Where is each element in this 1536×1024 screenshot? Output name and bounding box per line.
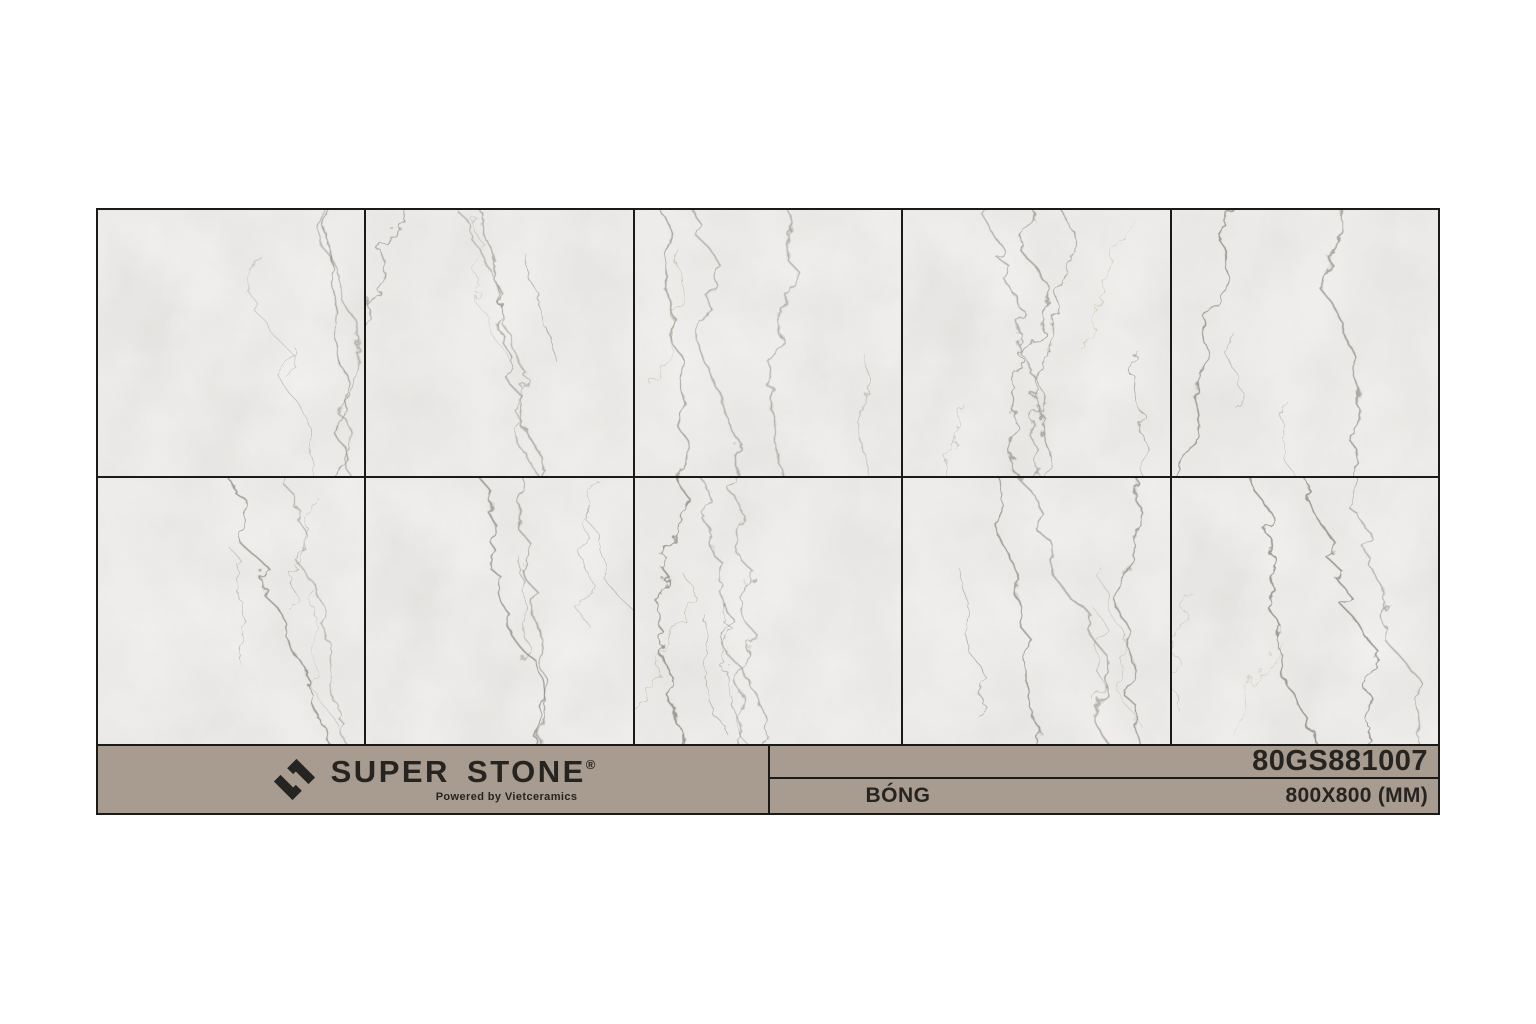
- product-code: 80GS881007: [770, 746, 1438, 779]
- tile-swatch: [635, 210, 901, 476]
- tile-swatch: [903, 210, 1169, 476]
- tile-swatch: [903, 478, 1169, 744]
- product-info-area: 80GS881007 BÓNG 800X800 (MM): [770, 746, 1438, 813]
- tile-grid: [96, 208, 1440, 746]
- tile-swatch: [635, 478, 901, 744]
- brand-name: SUPER STONE: [331, 754, 586, 789]
- brand-name-line: SUPER STONE®: [331, 756, 596, 789]
- brand-area: SUPER STONE® Powered by Vietceramics: [98, 746, 770, 813]
- tile-swatch: [98, 210, 364, 476]
- brand-text-block: SUPER STONE® Powered by Vietceramics: [331, 756, 596, 803]
- brand-logo: SUPER STONE® Powered by Vietceramics: [271, 756, 596, 803]
- product-sheet: SUPER STONE® Powered by Vietceramics 80G…: [0, 0, 1536, 1024]
- tile-swatch: [1172, 478, 1438, 744]
- product-size: 800X800 (MM): [1286, 784, 1439, 808]
- tile-swatch: [366, 210, 632, 476]
- product-finish: BÓNG: [770, 779, 1026, 813]
- product-spec-row: BÓNG 800X800 (MM): [770, 779, 1438, 813]
- registered-mark: ®: [586, 757, 596, 772]
- brand-tagline: Powered by Vietceramics: [331, 791, 596, 803]
- superstone-logo-icon: [271, 756, 318, 803]
- tile-swatch: [98, 478, 364, 744]
- tile-swatch: [366, 478, 632, 744]
- footer-info-bar: SUPER STONE® Powered by Vietceramics 80G…: [96, 744, 1440, 815]
- tile-swatch: [1172, 210, 1438, 476]
